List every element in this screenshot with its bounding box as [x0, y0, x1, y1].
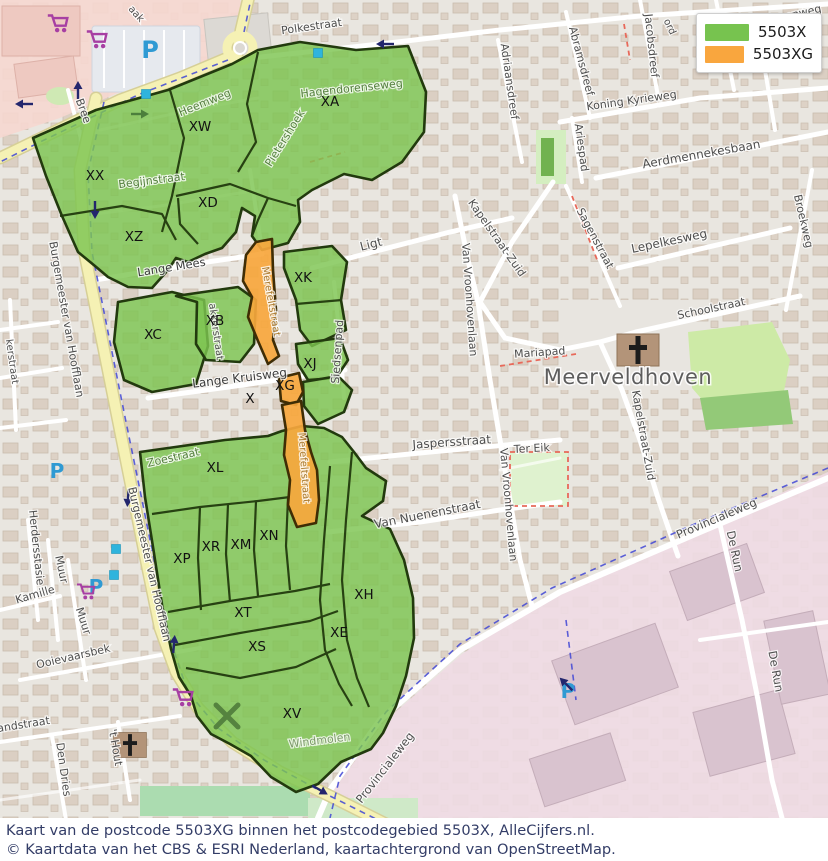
region-label-xh: XH: [354, 587, 373, 603]
poi-square-icon: [142, 90, 151, 99]
region-label-xn: XN: [259, 528, 278, 544]
region-label-xz: XZ: [125, 229, 144, 245]
region-label-xe: XE: [330, 625, 348, 641]
legend-label-5503x: 5503X: [758, 23, 806, 41]
legend-row-5503x: 5503X: [705, 21, 813, 43]
region-label-xb: XB: [206, 313, 225, 329]
poi-square-icon: [314, 49, 323, 58]
region-label-xp: XP: [173, 551, 190, 567]
region-label-xm: XM: [231, 537, 252, 553]
region-label-x: X: [245, 391, 254, 407]
region-label-xr: XR: [202, 539, 221, 555]
legend: 5503X 5503XG: [696, 13, 822, 73]
caption-line-2: © Kaartdata van het CBS & ESRI Nederland…: [6, 840, 828, 859]
region-label-xs: XS: [248, 639, 266, 655]
region-label-xj: XJ: [303, 356, 316, 372]
region-label-xg: XG: [275, 378, 295, 394]
region-label-xc: XC: [144, 327, 162, 343]
region-label-xv: XV: [283, 706, 302, 722]
region-label-xt: XT: [234, 605, 252, 621]
legend-swatch-green: [705, 24, 749, 41]
caption-line-1: Kaart van de postcode 5503XG binnen het …: [6, 821, 828, 840]
map-canvas[interactable]: PPPP PolkestraatHagendorenwegordaakAdria…: [0, 0, 828, 818]
region-label-xw: XW: [189, 119, 212, 135]
street-label-ter-eik: Ter Eik: [512, 441, 550, 456]
region-label-xl: XL: [207, 460, 224, 476]
region-label-xk: XK: [294, 270, 313, 286]
caption: Kaart van de postcode 5503XG binnen het …: [0, 818, 828, 861]
legend-label-5503xg: 5503XG: [753, 45, 813, 63]
church-icon: [617, 334, 659, 366]
region-label-xd: XD: [198, 195, 218, 211]
legend-row-5503xg: 5503XG: [705, 43, 813, 65]
postcode-map-page: PPPP PolkestraatHagendorenwegordaakAdria…: [0, 0, 828, 861]
poi-square-icon: [110, 571, 119, 580]
place-label-meerveldhoven: Meerveldhoven: [544, 365, 712, 389]
poi-square-icon: [112, 545, 121, 554]
legend-swatch-orange: [705, 46, 744, 63]
region-label-xa: XA: [321, 94, 340, 110]
region-label-xx: XX: [86, 168, 105, 184]
parking-icon: P: [141, 36, 159, 64]
parking-icon: P: [50, 459, 65, 483]
